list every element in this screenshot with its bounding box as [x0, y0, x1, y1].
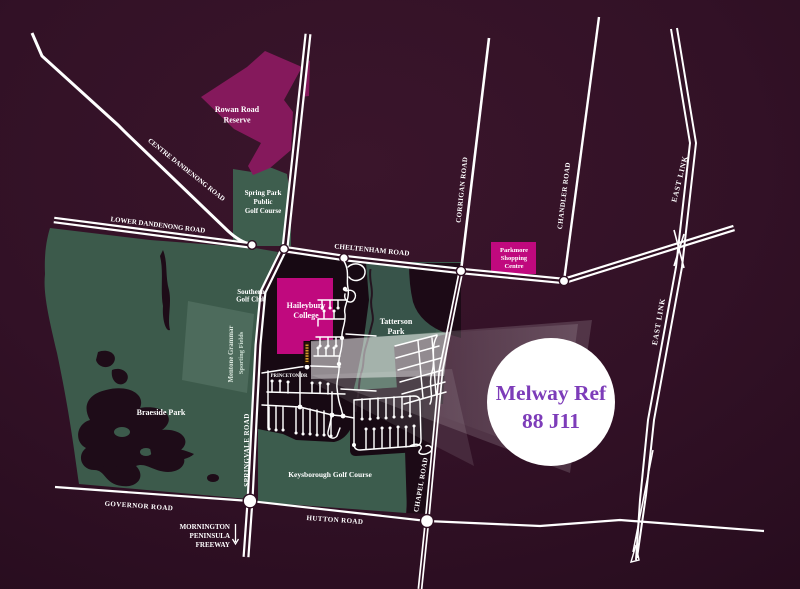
svg-text:Tatterson: Tatterson [380, 317, 413, 326]
svg-text:Golf Club: Golf Club [236, 296, 266, 304]
svg-text:PRINCETON DR: PRINCETON DR [271, 374, 308, 379]
svg-text:Mentone Grammar: Mentone Grammar [228, 326, 235, 383]
svg-text:Keysborough Golf Course: Keysborough Golf Course [288, 470, 372, 479]
svg-text:Haileybury: Haileybury [287, 301, 326, 310]
svg-text:Spring Park: Spring Park [245, 189, 282, 197]
svg-text:Sporting Fields: Sporting Fields [238, 331, 245, 374]
svg-text:MORNINGTON: MORNINGTON [180, 523, 230, 531]
svg-text:Braeside Park: Braeside Park [137, 408, 186, 417]
svg-text:Parkmore: Parkmore [500, 247, 528, 254]
svg-text:FREEWAY: FREEWAY [196, 541, 230, 549]
svg-text:PENINSULA: PENINSULA [190, 532, 230, 540]
svg-text:Rowan Road: Rowan Road [215, 105, 260, 114]
svg-text:Centre: Centre [504, 263, 523, 270]
svg-text:Reserve: Reserve [223, 116, 251, 125]
svg-text:College: College [293, 311, 319, 320]
svg-text:88 J11: 88 J11 [522, 409, 580, 433]
svg-text:Public: Public [253, 198, 272, 206]
svg-text:Golf Course: Golf Course [245, 207, 281, 215]
svg-text:Shopping: Shopping [501, 255, 528, 262]
svg-text:Park: Park [388, 327, 405, 336]
svg-text:SPRINGVALE ROAD: SPRINGVALE ROAD [243, 413, 251, 486]
svg-text:Melway Ref: Melway Ref [496, 381, 607, 405]
